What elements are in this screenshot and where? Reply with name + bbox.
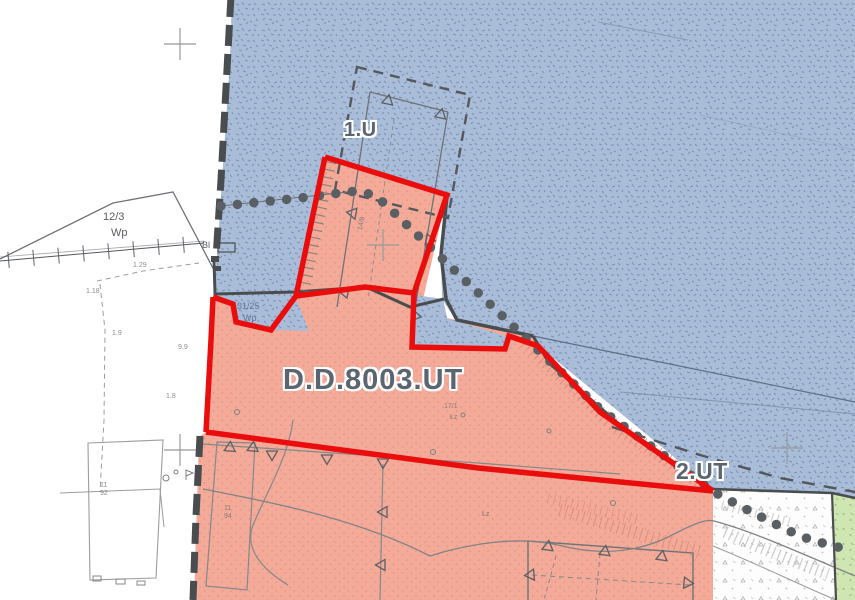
- survey-symbol-circle-1: [163, 475, 169, 481]
- survey-symbol-circle-2: [174, 470, 178, 474]
- parcel-rect-bottom-left: [88, 440, 163, 580]
- survey-symbol-flag: [186, 470, 193, 480]
- dashed-parcel-left: [100, 284, 105, 492]
- parcel-polyline-left: [0, 192, 215, 272]
- tiny-building-2: [116, 579, 125, 584]
- parcel-line-bl: [60, 489, 164, 527]
- tiny-building-3: [137, 581, 145, 585]
- survey-baseline: [0, 243, 204, 261]
- zoning-map-canvas: 1.U D.D.8003.UT 2.UT 12/3 Wp Bl 31/25 Wp…: [0, 0, 855, 600]
- grid-cross: [164, 434, 196, 466]
- dashed-parcel-top: [97, 263, 199, 281]
- grid-cross: [164, 28, 196, 60]
